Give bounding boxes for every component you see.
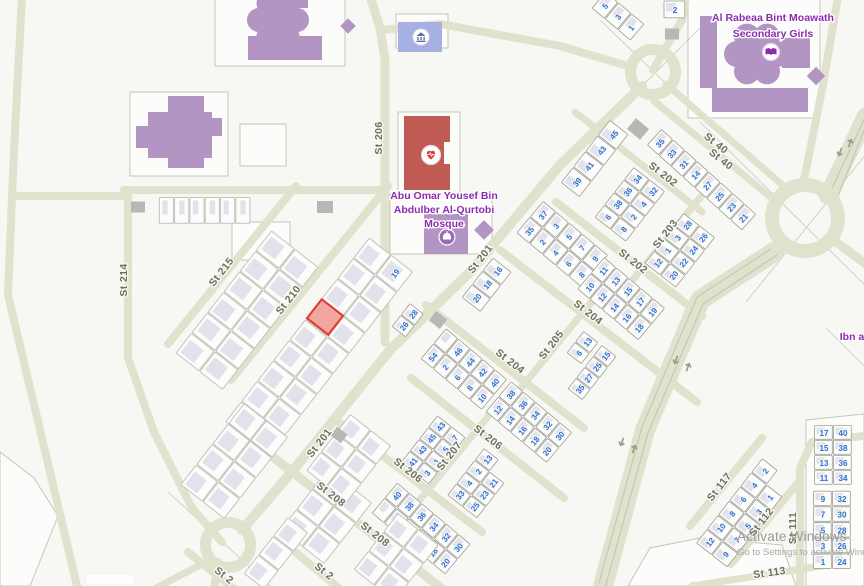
plot-number: 2	[673, 6, 678, 15]
block-top-2: 2	[664, 1, 685, 18]
plot[interactable]: 1	[814, 554, 832, 569]
utility-box	[665, 29, 679, 40]
street-label: St 214	[118, 263, 130, 296]
plot[interactable]: 13	[815, 456, 833, 470]
plot[interactable]: 32	[833, 491, 851, 506]
plot[interactable]: 38	[834, 441, 852, 455]
plot[interactable]	[221, 198, 235, 224]
plot[interactable]: 11	[815, 471, 833, 485]
school-w-building	[136, 126, 158, 148]
plot[interactable]: 9	[814, 491, 832, 506]
plot-number: 30	[838, 511, 847, 520]
school-girls-building	[700, 16, 717, 88]
school-nw-building	[248, 36, 322, 60]
plot-number: 7	[821, 511, 826, 520]
school-girls-label: Secondary Girls	[733, 28, 814, 40]
plot[interactable]: 40	[834, 426, 852, 440]
plot-number: 15	[820, 444, 829, 453]
plot[interactable]	[236, 198, 250, 224]
plot-number: 36	[839, 459, 848, 468]
plot-number: 32	[838, 495, 847, 504]
building-footprint	[162, 201, 167, 215]
map-svg: 3941434535333114272523216383634824321213…	[0, 0, 864, 586]
plot-number: 38	[839, 444, 848, 453]
plot-number: 28	[838, 526, 847, 535]
book-icon	[763, 44, 780, 61]
building-footprint	[210, 201, 215, 215]
plot[interactable]: 30	[833, 507, 851, 521]
building-footprint	[193, 201, 198, 215]
plot-number: 40	[839, 429, 848, 438]
plot[interactable]: 3	[814, 538, 832, 553]
plot[interactable]: 36	[834, 456, 852, 470]
map-canvas[interactable]: 3941434535333114272523216383634824321213…	[0, 0, 864, 586]
school-girls-building	[782, 38, 810, 68]
plot-number: 17	[820, 429, 829, 438]
mosque-label: Mosque	[424, 218, 464, 230]
street-label: St 111	[787, 512, 799, 544]
plot-number: 11	[820, 474, 829, 483]
plot[interactable]: 5	[814, 523, 832, 538]
plot-number: 3	[821, 542, 826, 551]
building-footprint	[224, 201, 229, 215]
utility-box	[317, 201, 333, 213]
plot[interactable]	[205, 198, 219, 224]
plot-number: 1	[821, 558, 826, 567]
bank-icon	[413, 29, 430, 46]
plot[interactable]: 28	[833, 523, 851, 538]
health-icon	[422, 146, 441, 165]
plot-number: 13	[820, 459, 829, 468]
plot[interactable]	[159, 198, 173, 224]
plot-number: 5	[821, 526, 826, 535]
mosque-label: Abu Omar Yousef Bin	[390, 190, 498, 202]
plot[interactable]: 2	[664, 1, 685, 18]
school-girls-label: Al Rabeaa Bint Moawath	[712, 12, 834, 24]
plot-number: 26	[838, 542, 847, 551]
plot-number: 9	[821, 495, 826, 504]
plot[interactable]: 17	[815, 426, 833, 440]
building-footprint	[240, 201, 245, 215]
plot[interactable]	[190, 198, 204, 224]
plot[interactable]: 7	[814, 507, 832, 521]
flower-center	[263, 5, 293, 35]
building-footprint	[179, 201, 184, 215]
plot[interactable]	[175, 198, 189, 224]
ibn-label: Ibn a	[840, 331, 864, 343]
plot[interactable]: 34	[834, 471, 852, 485]
plot[interactable]: 24	[833, 554, 851, 569]
mosque-label: Abdulber Al-Qurtobi	[394, 204, 495, 216]
plot-number: 24	[838, 558, 847, 567]
plot[interactable]: 26	[833, 538, 851, 553]
school-nw-building	[290, 0, 308, 8]
street-label: St 206	[373, 121, 385, 154]
scale-pill	[86, 575, 134, 584]
plot-number: 34	[839, 474, 848, 483]
plot[interactable]: 15	[815, 441, 833, 455]
utility-box	[131, 202, 145, 213]
school-girls-building	[712, 88, 808, 112]
mosque-dome-icon	[439, 229, 455, 245]
empty-parcel	[240, 124, 286, 166]
school-w-building	[196, 118, 222, 136]
